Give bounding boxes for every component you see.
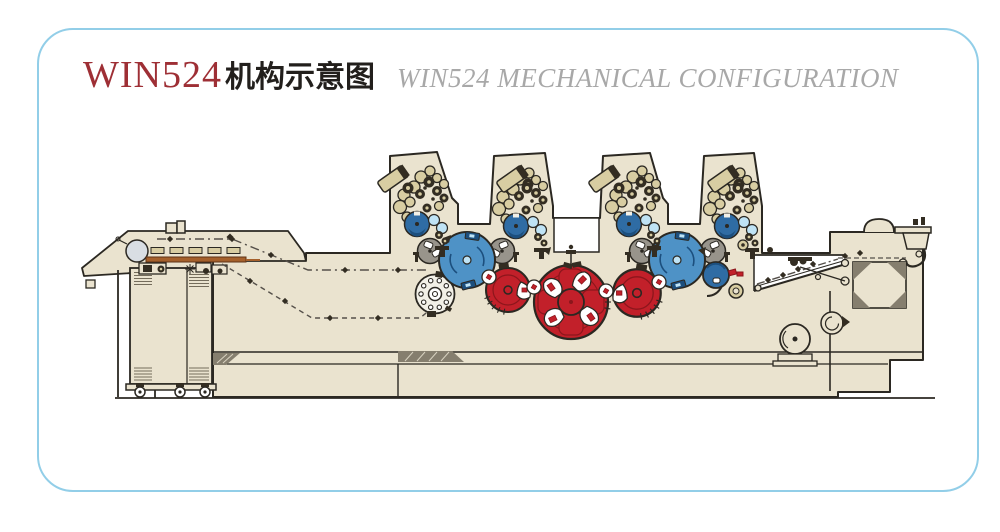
ink-dot: [431, 197, 435, 201]
plate-cylinder-slot: [626, 212, 632, 216]
chain-drive-sprocket: [790, 258, 798, 266]
transfer-body: [703, 262, 729, 288]
deck-valve-dot: [741, 243, 745, 247]
ink-roller-hub: [637, 206, 640, 209]
caster: [175, 383, 185, 397]
fountain-roller-hub: [525, 186, 529, 190]
delivery-ring-hub: [733, 288, 739, 294]
drum-center-dot: [569, 300, 573, 304]
ink-dot: [643, 197, 647, 201]
gray-cylinder-center: [428, 249, 432, 253]
dampening-hub: [438, 234, 441, 237]
caster-hub: [138, 390, 141, 393]
ink-roller: [435, 202, 444, 211]
drum-hole: [437, 279, 441, 283]
ink-roller-hub: [647, 189, 651, 193]
separator-roller: [203, 268, 209, 274]
ink-roller-hub: [728, 194, 732, 198]
sucker-foot: [189, 248, 202, 254]
ink-roller: [440, 180, 449, 189]
delivery-bracket: [903, 233, 929, 249]
drum-hole: [444, 284, 448, 288]
feed-pump-port: [143, 265, 152, 272]
delivery-side-knob: [916, 251, 922, 257]
ink-roller-hub: [517, 194, 521, 198]
ink-dot: [423, 186, 427, 190]
delivery-transfer-cylinder: [703, 262, 729, 288]
feed-ramp: [146, 257, 246, 262]
feeder-chimney: [166, 223, 177, 233]
drum-hole: [447, 292, 451, 296]
delivery-red-lever: [737, 272, 743, 276]
gripper-transfer: [527, 280, 541, 294]
gripper-transfer: [599, 284, 613, 298]
chain-drive-sprocket: [800, 258, 807, 265]
drum-hole: [422, 284, 426, 288]
dampening-hub: [444, 240, 447, 243]
ink-roller: [617, 197, 627, 207]
gray-cylinder-bracket: [513, 252, 519, 255]
caster: [135, 383, 145, 397]
gray-cylinder-bracket: [514, 255, 517, 262]
gray-cylinder-bracket: [725, 255, 728, 262]
blower-pedestal: [778, 354, 812, 361]
ink-roller-hub: [639, 180, 643, 184]
sucker-foot: [170, 248, 183, 254]
dampening-bracket: [750, 252, 755, 259]
blanket-center: [673, 256, 681, 264]
ink-roller: [715, 199, 725, 209]
gripper-transfer: [482, 270, 496, 284]
dampening-hub: [656, 240, 659, 243]
delivery-knob: [921, 217, 925, 225]
transfer-slot: [713, 278, 720, 283]
drum-hole: [444, 300, 448, 304]
ink-dot: [635, 186, 639, 190]
ink-roller-hub: [735, 208, 738, 211]
gripper-transfer: [652, 275, 666, 289]
dampening-bracket: [652, 250, 657, 257]
ink-roller: [745, 204, 754, 213]
feeder-foot: [86, 280, 95, 288]
ink-roller-hub: [630, 192, 634, 196]
delivery-fan: [821, 312, 843, 334]
caster: [200, 383, 210, 397]
sheet-separator: [185, 264, 195, 274]
drum-antenna-knob: [569, 245, 573, 249]
delivery-knob: [913, 219, 918, 225]
bridge-roller: [816, 275, 821, 280]
gray-cylinder-center: [711, 249, 715, 253]
ink-roller-hub: [534, 191, 538, 195]
infeed-hub: [429, 288, 442, 301]
page: WIN524机构示意图WIN524 MECHANICAL CONFIGURATI…: [0, 0, 1000, 532]
blanket-center: [463, 256, 471, 264]
suction-drum: [126, 240, 148, 262]
bridge-roller: [842, 260, 849, 267]
gray-cylinder-bracket: [724, 252, 730, 255]
plate-cylinder-center: [514, 224, 518, 228]
caster-hub: [178, 390, 181, 393]
plate-cylinder-slot: [513, 214, 519, 218]
dampening-hub: [543, 242, 546, 245]
mechanical-configuration-diagram: [0, 0, 1000, 532]
ink-roller-hub: [425, 206, 428, 209]
interunit-guard: [554, 218, 599, 252]
dampening-hub: [748, 236, 751, 239]
dampening-bracket: [440, 250, 445, 257]
blower-base: [773, 361, 817, 366]
plate-cylinder-center: [725, 224, 729, 228]
ink-dot: [741, 199, 745, 203]
dampening-hub: [754, 242, 757, 245]
gray-cylinder-center: [500, 249, 504, 253]
drum-hole: [422, 300, 426, 304]
dampening-bracket: [534, 248, 548, 252]
fountain-roller-hub: [617, 186, 621, 190]
ink-roller-hub: [418, 192, 422, 196]
ink-roller-hub: [524, 208, 527, 211]
sucker-foot: [208, 248, 221, 254]
sucker-foot: [227, 248, 240, 254]
ink-roller: [405, 197, 415, 207]
plate-cylinder-slot: [414, 212, 420, 216]
delivery-blower-hub: [793, 337, 798, 342]
plate-cylinder-center: [415, 222, 419, 226]
separator-roller: [218, 269, 223, 274]
sucker-foot: [151, 248, 164, 254]
ink-roller-hub: [752, 198, 755, 201]
delivery-dome: [864, 219, 894, 232]
feed-pump-hub: [160, 268, 163, 271]
delivery-red-lever: [729, 269, 737, 276]
bridge-roller: [755, 285, 761, 291]
plate-cylinder-slot: [724, 214, 730, 218]
plate-cylinder-center: [627, 222, 631, 226]
drum-hole: [419, 292, 423, 296]
ink-roller-hub: [654, 196, 657, 199]
gray-cylinder-bracket: [625, 252, 631, 255]
feeder-chimney: [177, 221, 185, 233]
fountain-roller-hub: [406, 186, 410, 190]
drum-hole: [429, 305, 433, 309]
ink-dot: [530, 199, 534, 203]
impression-gripper-pad: [522, 288, 527, 292]
impression-gripper-pad: [616, 291, 621, 295]
gray-cylinder-bracket: [413, 252, 419, 255]
drum-antenna-bar: [566, 250, 576, 254]
gray-cylinder-bracket: [415, 255, 418, 262]
dampening-hub: [650, 234, 653, 237]
caster-hub: [203, 390, 206, 393]
impression-center: [633, 289, 642, 298]
ink-roller: [750, 182, 759, 191]
drum-hole: [437, 305, 441, 309]
delivery-top-bar: [895, 227, 931, 233]
dampening-bracket: [435, 246, 449, 250]
gray-cylinder-bracket: [627, 255, 630, 262]
dampening-bracket: [647, 246, 661, 250]
ink-roller: [647, 202, 656, 211]
gray-cylinder-center: [640, 249, 644, 253]
deck-clip-roller: [767, 247, 773, 253]
infeed-bracket: [427, 311, 436, 317]
ink-roller-hub: [442, 196, 445, 199]
ink-roller: [534, 204, 543, 213]
impression-center: [504, 286, 512, 294]
dampening-bracket: [539, 252, 544, 259]
ink-roller: [652, 180, 661, 189]
ink-roller-hub: [745, 191, 749, 195]
fountain-roller-hub: [736, 186, 740, 190]
dampening-hub: [537, 236, 540, 239]
ink-roller-hub: [541, 198, 544, 201]
pile-table: [130, 268, 212, 384]
ink-roller: [504, 199, 514, 209]
ink-roller: [539, 182, 548, 191]
ink-roller-hub: [427, 180, 431, 184]
drum-hole: [429, 279, 433, 283]
ink-roller-hub: [435, 189, 439, 193]
